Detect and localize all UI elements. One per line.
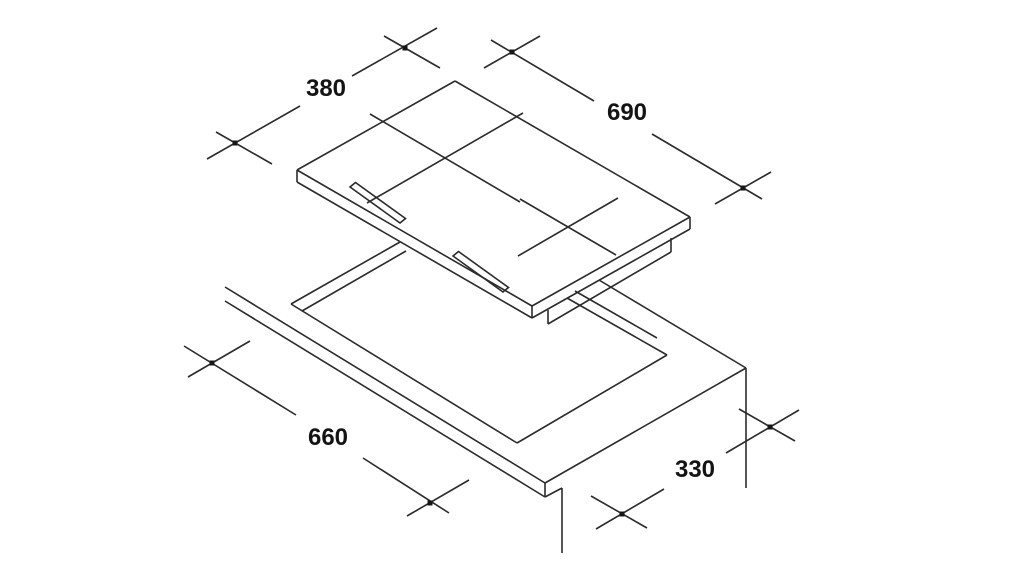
hob-front-right-edge (532, 217, 690, 306)
dim-330-tick-stroke-a (591, 496, 647, 528)
dim-660-dot-a (210, 361, 215, 366)
dimension-hob-width: 380 (207, 28, 440, 164)
hob-front-left-edge (297, 170, 532, 306)
dim-660-label: 660 (308, 424, 348, 451)
dimension-hob-length: 690 (484, 36, 771, 204)
dim-330-line-segment-2 (726, 410, 799, 453)
dim-330-line-segment-1 (596, 489, 664, 529)
dim-690-dot-b (741, 186, 746, 191)
hob-lower-left-edge (297, 182, 532, 318)
burner-cross-large (367, 113, 523, 203)
dim-380-line-segment-1 (207, 106, 300, 159)
cutout-back-right-edge (567, 298, 667, 355)
cutout-back-left-edge (291, 242, 400, 304)
dimension-cutout-width: 330 (591, 409, 799, 529)
worktop-back-right-edge (599, 280, 746, 368)
dim-690-line-segment-1 (491, 40, 594, 101)
dim-330-dot-a (620, 512, 625, 517)
burner-cross-small (518, 198, 618, 256)
dim-380-tick-stroke-a (216, 132, 272, 164)
hob-top-right-edge (455, 81, 690, 217)
dimension-cutout-length: 660 (184, 341, 469, 516)
dim-380-line-segment-2 (352, 28, 437, 76)
dim-690-label: 690 (607, 99, 647, 126)
dim-380-dot-b (403, 46, 408, 51)
hob-installation-diagram: 380 690 660 (0, 0, 1020, 570)
dim-380-tick-stroke-b (384, 36, 440, 68)
dim-660-dot-b (428, 501, 433, 506)
cutout-front-right-edge (517, 355, 667, 443)
worktop-bottom-right-stub (545, 488, 562, 497)
worktop (225, 280, 746, 553)
dim-330-label: 330 (675, 456, 715, 483)
vent-slot-2 (453, 252, 509, 293)
worktop-front-left-bottom-edge (225, 301, 545, 497)
dim-380-label: 380 (306, 75, 346, 102)
dim-660-line-segment-2 (363, 458, 449, 513)
worktop-front-right-top-edge (545, 368, 746, 483)
technical-drawing-canvas: 380 690 660 (0, 0, 1020, 570)
dim-660-line-segment-1 (184, 346, 296, 415)
dim-660-tick-stroke-b (407, 480, 469, 516)
dim-660-tick-stroke-a (188, 341, 250, 377)
hob-lower-right-edge (532, 229, 690, 318)
cutout-back-left-wall-line (302, 251, 406, 311)
dim-380-dot-a (233, 141, 238, 146)
dim-690-dot-a (510, 50, 515, 55)
cutout-front-left-edge (291, 304, 517, 443)
cutout-back-right-wall-line (575, 291, 657, 338)
worktop-front-left-top-edge (225, 287, 545, 483)
dim-330-dot-b (768, 425, 773, 430)
dim-330-tick-stroke-b (739, 409, 795, 441)
worktop-cutout (291, 242, 667, 443)
